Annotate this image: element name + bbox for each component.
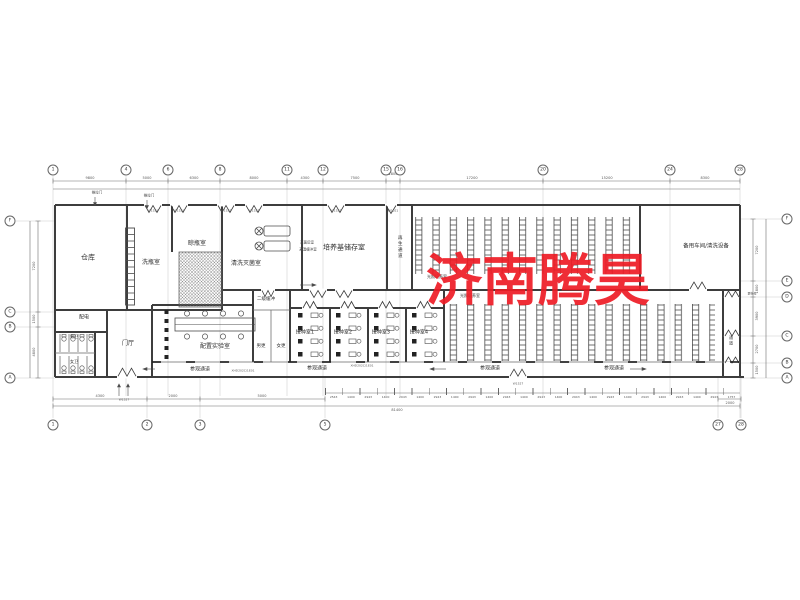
- door-tag: W1527: [221, 210, 232, 213]
- dim-right: 1500: [755, 366, 759, 375]
- dimension-lines: [30, 179, 766, 409]
- grid-bubble-top: 1: [48, 165, 59, 176]
- dimension-value: 1400: [654, 395, 671, 399]
- room-label-foyer: 门厅: [122, 341, 134, 347]
- dimension-value: 1400: [550, 395, 567, 399]
- dimension-value: 1400: [377, 395, 394, 399]
- room-label-power: 配电: [79, 316, 89, 321]
- dim-top: 8300: [701, 176, 710, 180]
- dimension-value: 1400: [515, 395, 532, 399]
- dimension-value: 1400: [688, 395, 705, 399]
- grid-bubble-right: C: [782, 331, 793, 342]
- dimension-value: 2943: [463, 395, 480, 399]
- door-tag: W1527: [331, 210, 342, 213]
- grid-bubble-top: 12: [318, 165, 329, 176]
- room-label-bottle-wash: 洗瓶室: [142, 260, 160, 266]
- grid-bubble-right: E: [782, 276, 793, 287]
- room-label-men-change: 男更: [257, 345, 266, 350]
- dim-bottom: 2000: [169, 394, 178, 398]
- grid-bubble-top: 8: [215, 165, 226, 176]
- room-label-bottle-dry: 晾瓶室: [188, 241, 206, 247]
- bottom-dimension-series: 2543140029431400294314002943140029431400…: [325, 395, 740, 399]
- autoclave-machines: [255, 226, 290, 251]
- grid-bubble-bottom: 1: [48, 420, 59, 431]
- grid-bubble-left: A: [5, 373, 16, 384]
- room-label-inoc4: 接种室4: [410, 331, 428, 336]
- grid-bubble-left: F: [5, 216, 16, 227]
- annotation-push-door: 推拉门: [92, 191, 103, 195]
- grid-bubble-right: A: [782, 373, 793, 384]
- label-shoe-change: 更鞋处: [747, 293, 756, 296]
- dimension-value: 2943: [636, 395, 653, 399]
- dim-right: 7200: [755, 246, 759, 255]
- corridor-label-visit4: 参观通道: [604, 367, 624, 372]
- room-label-women-change: 女更: [277, 345, 286, 350]
- grid-bubble-top: 24: [665, 165, 676, 176]
- dimension-value: 2943: [706, 395, 723, 399]
- dimension-value: 2943: [498, 395, 515, 399]
- room-label-women-wc: 女卫: [70, 360, 78, 364]
- grid-bubble-left: B: [5, 322, 16, 333]
- door-tag: W1521: [174, 210, 185, 213]
- bottle-basket-area: [179, 252, 222, 307]
- dim-top: 6300: [190, 176, 199, 180]
- grid-bubble-right: B: [782, 358, 793, 369]
- grid-bubble-top: 6: [163, 165, 174, 176]
- dimension-value: 2943: [602, 395, 619, 399]
- door-tag: W1021: [388, 210, 399, 213]
- grid-bubble-top: 28: [735, 165, 746, 176]
- room-label-inoc2: 接种室2: [334, 331, 352, 336]
- dimension-value: 1400: [446, 395, 463, 399]
- dimension-value: 2943: [429, 395, 446, 399]
- door-tag: W1527: [513, 383, 524, 386]
- grid-bubble-right: F: [782, 214, 793, 225]
- room-label-buffer2: 二级缓冲: [257, 298, 275, 303]
- dimension-value: 1400: [411, 395, 428, 399]
- room-label-medium-storage: 培养基储存室: [323, 245, 365, 252]
- room-label-hot-buffer: 高温缓冲室: [299, 248, 317, 252]
- dim-right: 3900: [755, 312, 759, 321]
- grid-bubble-top: 15: [381, 165, 392, 176]
- dim-top: 4300: [301, 176, 310, 180]
- grid-bubble-bottom: 28: [736, 420, 747, 431]
- annotation-finish-code: XHD202C/1E01: [231, 370, 254, 373]
- dim-top: 5000: [143, 176, 152, 180]
- corridor-threshold-marks: [152, 361, 740, 364]
- room-label-warehouse: 仓库: [81, 255, 95, 262]
- dimension-value: 2943: [567, 395, 584, 399]
- dimension-value: 1400: [619, 395, 636, 399]
- toilet-fixtures: [62, 335, 93, 374]
- dimension-value: 2943: [671, 395, 688, 399]
- grid-bubble-bottom: 3: [195, 420, 206, 431]
- grid-bubble-top: 16: [395, 165, 406, 176]
- room-label-prep-lab: 配置实验室: [200, 344, 230, 350]
- room-label-men-wc: 男卫: [70, 335, 78, 339]
- dim-top: 15200: [601, 176, 612, 180]
- bottom-dimension-ticks: [325, 388, 740, 395]
- grid-bubble-top: 11: [282, 165, 293, 176]
- dimension-value: 2943: [360, 395, 377, 399]
- grid-bubble-right: D: [782, 292, 793, 303]
- dim-bottom-total: 81400: [391, 408, 402, 412]
- room-label-side-corridor: 通道: [729, 336, 733, 347]
- dim-top: 8000: [250, 176, 259, 180]
- annotation-push-door: 推拉门: [144, 194, 155, 198]
- corridor-label-visit2: 参观通道: [307, 367, 327, 372]
- dim-bottom: 4300: [96, 394, 105, 398]
- dim-left: 1500: [32, 315, 36, 324]
- dimension-value: 1757: [723, 395, 740, 399]
- dimension-value: 1400: [481, 395, 498, 399]
- dim-left: 4800: [32, 348, 36, 357]
- dimension-value: 2943: [533, 395, 550, 399]
- conveyor: [126, 228, 135, 305]
- grid-bubble-bottom: 5: [320, 420, 331, 431]
- floor-plan-screenshot: 2543140029431400294314002943140029431400…: [0, 0, 800, 600]
- annotation-finish-code: XHD202C/1E01: [350, 365, 373, 368]
- grid-bubble-left: C: [5, 307, 16, 318]
- dimension-value: 1400: [584, 395, 601, 399]
- dimension-value: 2543: [325, 395, 342, 399]
- grid-bubble-top: 4: [121, 165, 132, 176]
- dim-left: 7200: [32, 262, 36, 271]
- dimension-value: 2943: [394, 395, 411, 399]
- room-label-spare-workshop: 备用车间/清洗设备: [683, 244, 729, 250]
- grid-bubble-bottom: 27: [713, 420, 724, 431]
- grid-bubble-bottom: 2: [142, 420, 153, 431]
- dim-top: 7500: [351, 176, 360, 180]
- room-label-post-sterilize: 灭菌后室: [300, 241, 314, 245]
- dimension-value: 1400: [342, 395, 359, 399]
- grid-bubble-top: 20: [538, 165, 549, 176]
- dim-top: 17200: [466, 176, 477, 180]
- dim-top: 9800: [86, 176, 95, 180]
- room-label-inoc3: 接种室3: [372, 331, 390, 336]
- room-label-inoc1: 接种室1: [296, 331, 314, 336]
- corridor-label-visit1: 参观通道: [190, 368, 210, 373]
- door-tag: W1527: [119, 399, 130, 402]
- corridor-label-visit3: 参观通道: [480, 367, 500, 372]
- prep-lab-bench: [165, 310, 256, 359]
- room-label-regen-corridor: 再生通道: [397, 235, 402, 259]
- floor-plan-drawing: [0, 0, 800, 600]
- door-tag: W1527: [249, 210, 260, 213]
- dim-corridor-width: 2000: [726, 401, 735, 405]
- room-label-wash-sterilize: 清洗灭菌室: [231, 261, 261, 267]
- dim-bottom: 5000: [258, 394, 267, 398]
- dim-right: 2700: [755, 345, 759, 354]
- watermark-text: 济南腾昊: [426, 253, 650, 309]
- door-tag: W1521: [148, 210, 159, 213]
